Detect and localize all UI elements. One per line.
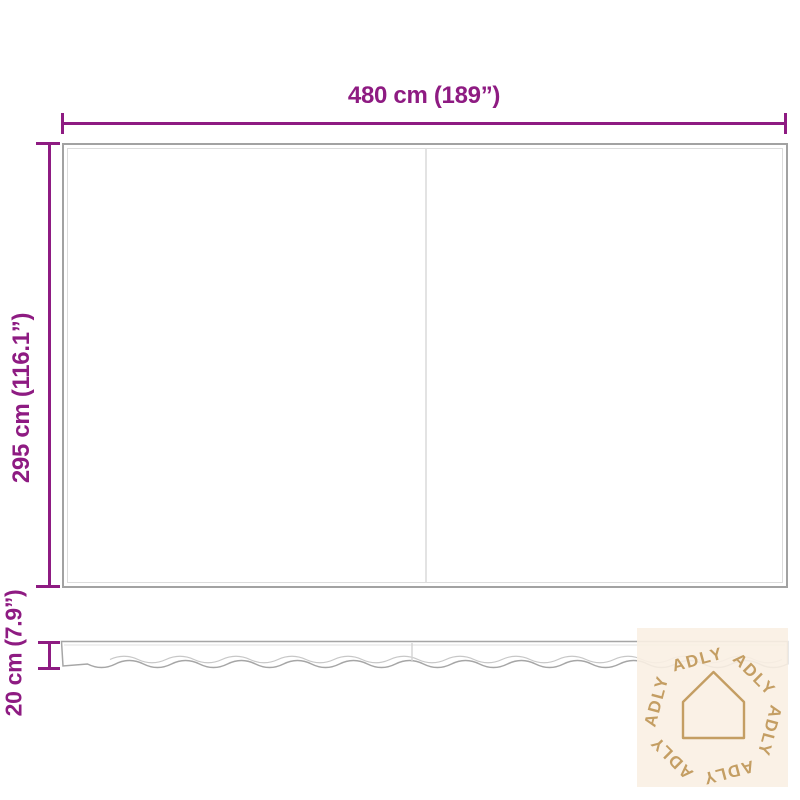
height-dimension-line xyxy=(48,143,51,588)
width-dimension-line xyxy=(62,122,787,125)
valance-dimension-label: 20 cm (7.9”) xyxy=(1,590,28,717)
valance-dimension-line xyxy=(48,643,51,670)
height-dimension-cap-bottom xyxy=(36,585,60,588)
awning-fabric-panel xyxy=(62,143,788,588)
height-dimension-cap-top xyxy=(36,142,60,145)
height-dimension-label: 295 cm (116.1”) xyxy=(8,313,36,483)
watermark-content: ADLY ADLY ADLY ADLY ADLY ADLY xyxy=(637,628,788,787)
fabric-center-seam xyxy=(425,149,427,582)
valance-dimension-cap-bottom xyxy=(38,667,60,670)
width-dimension-label: 480 cm (189”) xyxy=(348,82,500,110)
width-dimension-cap-right xyxy=(784,113,787,134)
width-dimension-cap-left xyxy=(61,113,64,134)
product-dimension-diagram: 480 cm (189”) 295 cm (116.1”) 20 cm (7.9… xyxy=(0,0,800,800)
brand-watermark: ADLY ADLY ADLY ADLY ADLY ADLY xyxy=(637,628,788,787)
valance-dimension-cap-top xyxy=(38,641,60,644)
